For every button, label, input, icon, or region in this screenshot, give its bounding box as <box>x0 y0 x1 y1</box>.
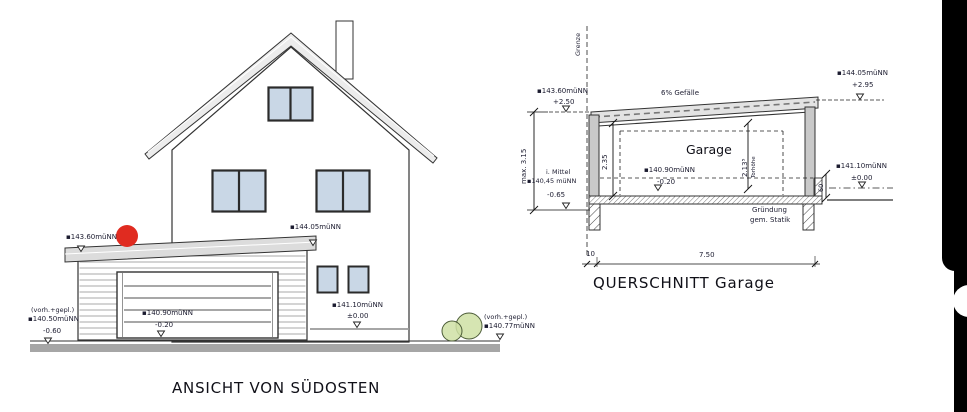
elevation-title: ANSICHT VON SÜDOSTEN <box>172 379 380 397</box>
section-floor-rel: -0.20 <box>657 178 675 186</box>
elev-grade-level: ▪141.10müNN <box>332 301 383 309</box>
garage-elevation <box>65 236 316 340</box>
window-small-left <box>318 267 338 293</box>
elev-right-note: (vorh.+gepl.) <box>484 313 527 321</box>
elev-floor-rel: -0.20 <box>155 321 173 329</box>
drawing-canvas <box>0 0 967 412</box>
section-boundary-label: Grenze <box>574 33 582 56</box>
section-wall-right <box>805 107 815 196</box>
section-grade-rel: ±0.00 <box>851 174 872 182</box>
section-avg-note: i. Mittel <box>546 168 570 176</box>
elev-left-level: ▪140.50müNN <box>28 315 79 323</box>
section-grade-level: ▪141.10müNN <box>836 162 887 170</box>
elev-floor-level: ▪140.90müNN <box>142 309 193 317</box>
section-foundation-note-1: Gründung <box>752 206 787 214</box>
window-upper-left <box>213 171 266 212</box>
section-room-label: Garage <box>686 142 732 157</box>
window-small-right <box>349 267 369 293</box>
clearance-dashed-box <box>600 131 813 195</box>
section-slope-label: 6% Gefälle <box>661 89 699 97</box>
section-roof-high-level: ▪144.05müNN <box>837 69 888 77</box>
section-roof <box>591 97 818 126</box>
section-roof-high-rel: +2.95 <box>852 81 873 89</box>
elev-left-rel: -0.60 <box>43 327 61 335</box>
elev-roof-right-level: ▪144.05müNN <box>290 223 341 231</box>
section-floor-level: ▪140.90müNN <box>644 166 695 174</box>
section-roof-low-level: ▪143.60müNN <box>537 87 588 95</box>
foundation-right <box>803 204 814 230</box>
section-title: QUERSCHNITT Garage <box>593 274 775 292</box>
red-marker-dot <box>116 225 138 247</box>
side-panel-edge <box>942 0 967 412</box>
elev-left-note: (vorh.+gepl.) <box>31 306 74 314</box>
dim-clear-height <box>609 119 617 200</box>
chimney <box>336 21 353 79</box>
section-door-height-label: Torhöhe <box>750 156 758 178</box>
section-dim-offset: 10 <box>586 250 595 258</box>
section-curb-height: 60 <box>817 184 825 192</box>
section-avg-rel: -0.65 <box>547 191 565 199</box>
elev-right-level: ▪140.77müNN <box>484 322 535 330</box>
elev-grade-rel: ±0.00 <box>347 312 368 320</box>
house-elevation <box>30 21 504 352</box>
elev-roof-left-level: ▪143.60müNN <box>66 233 117 241</box>
window-gable <box>269 88 313 121</box>
section-clear-height: 2.35 <box>601 154 609 170</box>
window-upper-right <box>317 171 370 212</box>
section-dim-width: 7.50 <box>699 251 715 259</box>
foundation-left <box>589 204 600 230</box>
section-avg-level: ▪140,45 müNN <box>527 177 576 185</box>
shrubs <box>442 313 482 341</box>
section-floor-slab <box>589 196 822 204</box>
section-wall-left <box>589 115 599 196</box>
section-roof-low-rel: +2.50 <box>553 98 574 106</box>
blueprint-page: ▪143.60müNN ▪144.05müNN ▪141.10müNN ±0.0… <box>0 0 967 412</box>
garage-door <box>117 272 278 338</box>
section-foundation-note-2: gem. Statik <box>750 216 790 224</box>
section-door-height: 2.13⁵ <box>741 159 749 177</box>
